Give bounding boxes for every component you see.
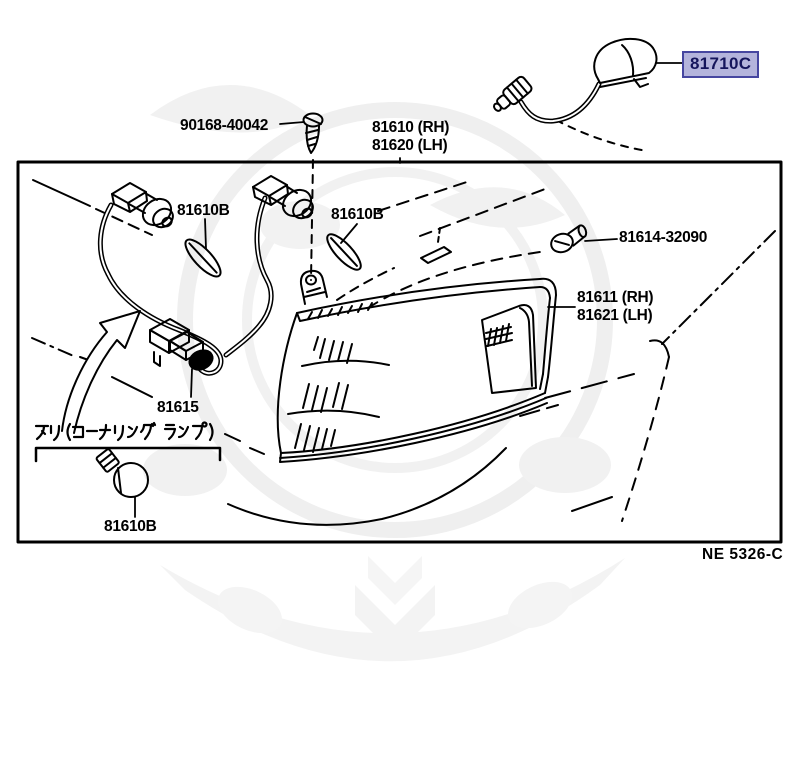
part-label-screw: 90168-40042 [180,117,268,135]
part-label-grommet: 81614-32090 [619,229,707,247]
diagram-code: NE 5326-C [702,546,783,564]
pointer-arrow [62,311,140,433]
part-label-lamp-assy-rh: 81610 (RH) [372,119,449,137]
corner-lamp-body-drawing [278,271,556,462]
bulb-drawing [96,448,148,497]
part-label-bulb-b: 81610B [331,206,384,224]
part-label-lens-lh: 81621 (LH) [577,307,653,325]
part-label-bulb-c: 81610B [104,518,157,536]
bulb-socket-1-drawing [112,183,176,231]
part-label-connector: 81615 [157,399,199,417]
cornering-connector-drawing [150,319,216,373]
side-turn-lamp-drawing [489,39,656,121]
diagram-canvas [0,0,790,768]
screw-drawing [304,114,323,154]
screw-centerline [311,160,313,280]
caption-bracket [36,448,220,461]
part-label-lens-rh: 81611 (RH) [577,289,653,307]
part-label-lamp-assy-lh: 81620 (LH) [372,137,449,155]
wedge-bulb-2-drawing [322,230,365,275]
part-label-lamp-assy: 81610 (RH) 81620 (LH) [372,119,449,155]
cornering-lamp-caption [36,422,221,442]
part-label-bulb-a: 81610B [177,202,230,220]
diagram-frame [18,162,781,542]
phantom-lines [32,120,775,525]
part-label-lens: 81611 (RH) 81621 (LH) [577,289,653,325]
parts-diagram-page: 90168-40042 81610 (RH) 81620 (LH) 81610B… [0,0,790,768]
grommet-drawing [548,224,590,255]
wedge-bulb-1-drawing [180,235,225,282]
part-label-side-turn-lamp-highlighted[interactable]: 81710C [682,51,759,78]
